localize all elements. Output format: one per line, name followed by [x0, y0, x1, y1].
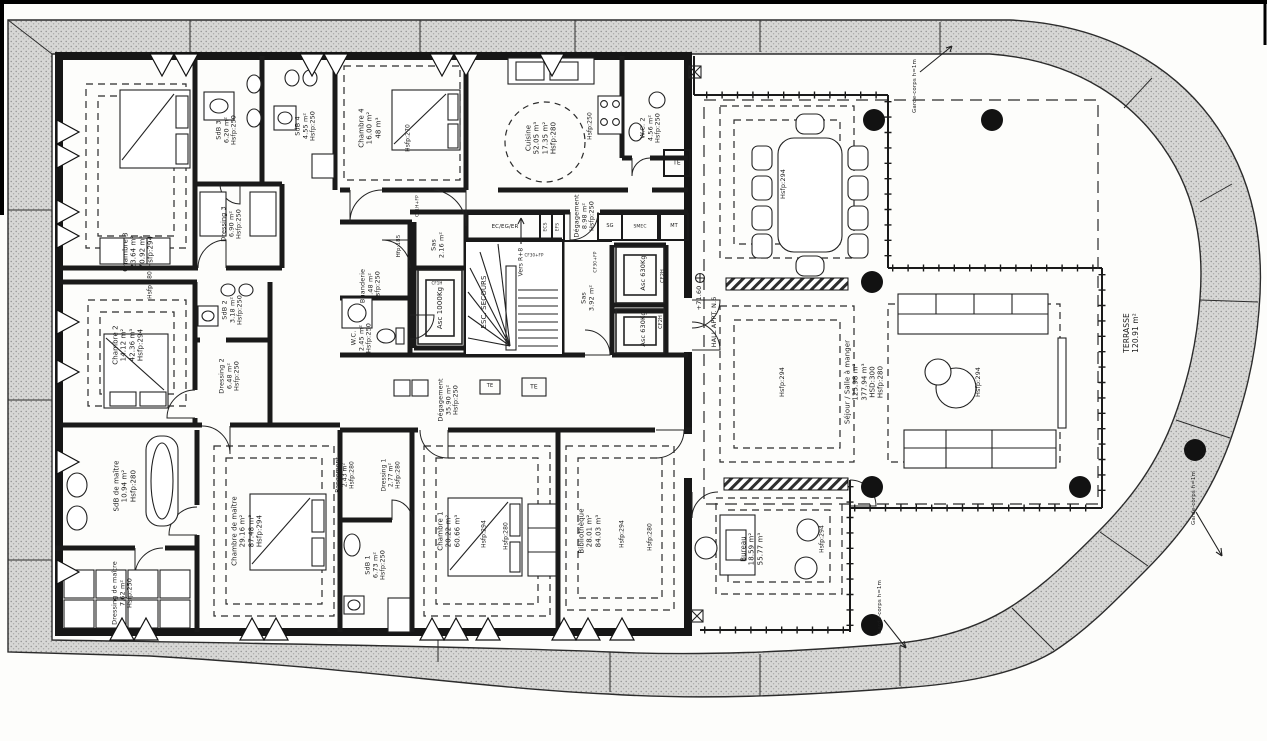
coffee-table-icon [925, 359, 951, 385]
toilet-icon [344, 534, 360, 556]
bed-icon [120, 90, 190, 168]
shower-icon [388, 598, 410, 632]
cooktop-icon [598, 96, 622, 134]
desk-chair-icon [695, 537, 717, 559]
toilet-icon [285, 70, 299, 86]
daybed-icon [528, 504, 556, 576]
toilet-icon [247, 75, 261, 93]
washbasin-icon [204, 92, 234, 120]
shower-icon [312, 154, 334, 178]
bed-icon [392, 90, 460, 150]
desk-icon [720, 515, 755, 575]
toilet-icon [239, 284, 253, 296]
washer-icon [342, 298, 372, 328]
toilet-icon [221, 284, 235, 296]
hatched-bars [724, 278, 848, 490]
armchair-icon [795, 557, 817, 579]
washbasin-icon [198, 306, 218, 326]
glazing-ticks [704, 95, 1102, 630]
toilet-icon [629, 123, 643, 141]
bed-icon [104, 334, 168, 408]
console-icon [1058, 338, 1066, 428]
washbasin-icon [274, 106, 296, 130]
bathtub-icon [146, 436, 178, 526]
floor-plan-drawing [0, 0, 1267, 741]
chaise-icon [904, 430, 1056, 468]
washbasin-icon [67, 473, 87, 497]
bed-icon [448, 498, 522, 576]
dining-table-icon [752, 114, 868, 276]
armchair-icon [797, 519, 819, 541]
bed-icon [250, 494, 326, 570]
sofa-icon [898, 294, 1048, 334]
washbasin-icon [649, 92, 665, 108]
washbasin-icon [67, 506, 87, 530]
toilet-icon [247, 109, 261, 127]
toilet-icon [377, 328, 404, 344]
floorplan-canvas: Chambre 323.64 m²70.92 m³Hsfp:294SdB 36.… [0, 0, 1267, 741]
washbasin-icon [344, 596, 364, 614]
sofa-icon [100, 238, 170, 264]
